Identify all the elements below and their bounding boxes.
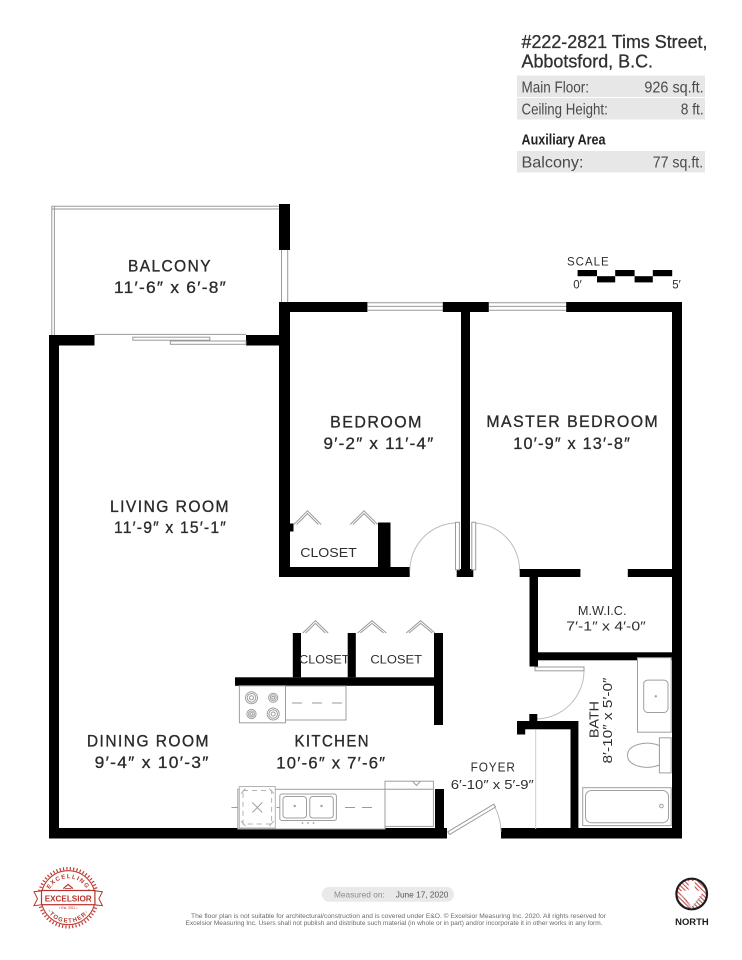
svg-text:LIVING ROOM: LIVING ROOM	[110, 497, 230, 516]
svg-text:EXCELSIOR: EXCELSIOR	[45, 894, 92, 904]
svg-text:MASTER BEDROOM: MASTER BEDROOM	[486, 412, 659, 431]
svg-text:8′-10″ x 5′-0″: 8′-10″ x 5′-0″	[601, 677, 615, 764]
svg-text:CLOSET: CLOSET	[370, 654, 422, 666]
svg-text:10′-6″ x 7′-6″: 10′-6″ x 7′-6″	[276, 754, 386, 772]
svg-text:9′-2″ x 11′-4″: 9′-2″ x 11′-4″	[324, 435, 435, 453]
svg-text:Auxiliary Area: Auxiliary Area	[522, 132, 607, 148]
svg-text:10′-9″ x 13′-8″: 10′-9″ x 13′-8″	[513, 435, 631, 453]
svg-text:Excelsior Measuring Inc. Users: Excelsior Measuring Inc. Users shall not…	[186, 920, 603, 927]
svg-text:77 sq.ft.: 77 sq.ft.	[653, 154, 704, 171]
svg-text:The floor plan is not suitable: The floor plan is not suitable for archi…	[191, 912, 607, 920]
svg-text:Measured on:: Measured on:	[334, 890, 385, 900]
svg-text:June 17, 2020: June 17, 2020	[396, 890, 449, 900]
svg-text:7′-1″ x 4′-0″: 7′-1″ x 4′-0″	[566, 620, 646, 634]
svg-text:DINING ROOM: DINING ROOM	[87, 732, 210, 751]
svg-text:926 sq.ft.: 926 sq.ft.	[644, 79, 703, 96]
svg-text:Abbotsford, B.C.: Abbotsford, B.C.	[522, 51, 654, 72]
svg-text:Balcony:: Balcony:	[522, 154, 584, 171]
svg-text:• Est. 2011 •: • Est. 2011 •	[59, 905, 78, 910]
svg-text:5′: 5′	[672, 280, 681, 292]
svg-text:BATH: BATH	[587, 701, 602, 738]
svg-text:9′-4″ x 10′-3″: 9′-4″ x 10′-3″	[95, 754, 210, 772]
svg-text:11′-6″ x 6′-8″: 11′-6″ x 6′-8″	[114, 279, 227, 297]
svg-text:0′: 0′	[573, 280, 582, 292]
svg-text:CLOSET: CLOSET	[299, 654, 349, 666]
svg-text:BEDROOM: BEDROOM	[330, 413, 423, 432]
svg-text:Ceiling Height:: Ceiling Height:	[522, 102, 608, 119]
svg-text:M.W.I.C.: M.W.I.C.	[578, 603, 627, 618]
svg-text:6′-10″ x 5′-9″: 6′-10″ x 5′-9″	[451, 778, 535, 792]
svg-text:Main Floor:: Main Floor:	[522, 79, 590, 96]
svg-text:FOYER: FOYER	[471, 760, 516, 775]
svg-text:#222-2821 Tims Street,: #222-2821 Tims Street,	[522, 31, 708, 52]
svg-text:SCALE: SCALE	[567, 257, 610, 269]
svg-text:BALCONY: BALCONY	[128, 257, 212, 276]
svg-text:CLOSET: CLOSET	[300, 546, 357, 560]
svg-text:11′-9″ x 15′-1″: 11′-9″ x 15′-1″	[114, 519, 227, 537]
svg-text:8 ft.: 8 ft.	[681, 102, 704, 119]
svg-text:NORTH: NORTH	[675, 917, 709, 927]
svg-text:KITCHEN: KITCHEN	[295, 731, 370, 750]
